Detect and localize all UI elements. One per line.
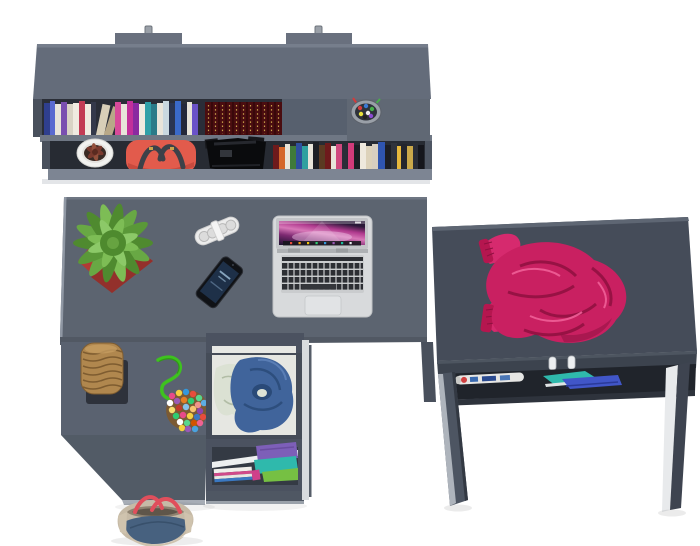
- wall-shelf: grey wall shelf unit with two hanging br…: [33, 26, 432, 184]
- laptop-dock: [283, 241, 361, 246]
- black-camera-bag: black camera bag: [205, 136, 266, 172]
- books-bottom-row: row of books on the lower shelf: [273, 142, 424, 172]
- laptop: open silver laptop with pink wallpaper: [273, 216, 372, 317]
- white-flower-pot: white flower pot with small plant: [77, 139, 113, 167]
- furniture-render: grey wall shelf unit with two hanging br…: [0, 0, 700, 546]
- wicker-basket: wicker basket on dark stand: [81, 343, 128, 404]
- books-top-row: row of colourful books on the top shelf: [44, 101, 205, 137]
- scene: grey wall shelf unit with two hanging br…: [0, 0, 700, 546]
- pencil-cup: pencil cup with coloured pens: [351, 98, 381, 124]
- laptop-keyboard: [281, 255, 364, 293]
- red-handbag: coral red handbag with dark straps: [126, 140, 196, 174]
- antique-books: dark red antique books with gold ornamen…: [205, 102, 282, 137]
- drawer-unit: drawer unit with open drawer open drawer…: [203, 333, 312, 511]
- drawer-compartment: lower compartment with folded clothes an…: [206, 439, 304, 491]
- open-drawer: open drawer with blue jacket and light c…: [206, 353, 304, 439]
